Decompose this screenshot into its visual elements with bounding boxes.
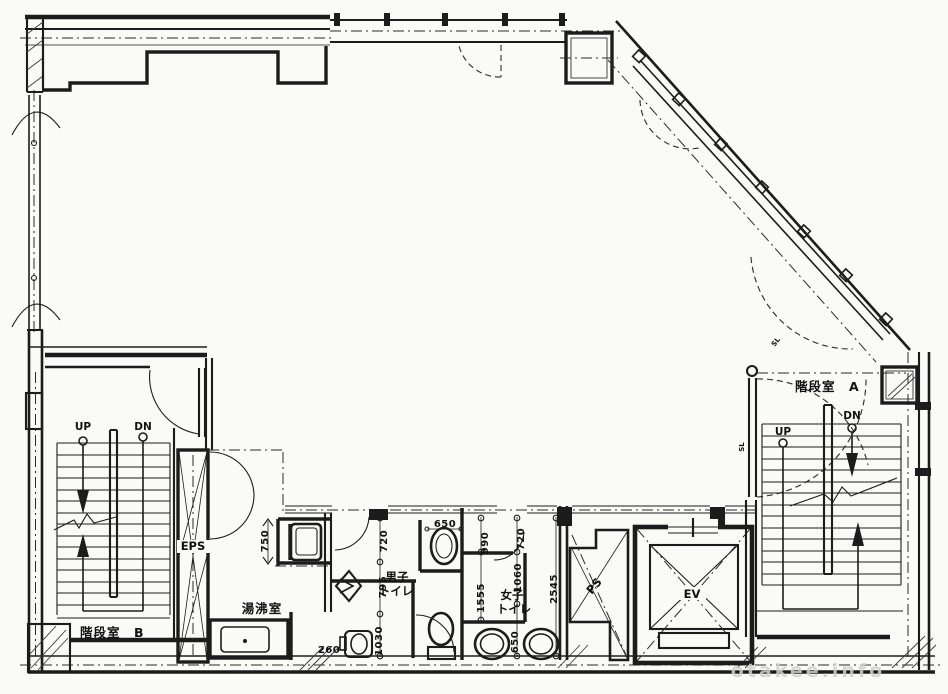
arrow-up-icon [852, 522, 864, 546]
dim-720-mens: 720 [379, 530, 390, 552]
top-window-band [330, 13, 622, 77]
floor-plan-drawing: 階段室 B 階段室 A 湯沸室 男子 トイレ 女子 トイレ EPS PS EV … [0, 0, 948, 694]
stair-walkline-b [54, 433, 147, 611]
eps-shaft [177, 358, 283, 662]
stairwell-a [746, 366, 917, 637]
floor-urinal-icon [340, 631, 372, 657]
dim-720-womens: 720 [516, 528, 527, 550]
stair-stringer-a [824, 405, 832, 574]
room-label-womens-2: トイレ [497, 602, 532, 616]
door-mens [335, 517, 369, 550]
dim-650-womens: 650 [510, 631, 521, 653]
top-wall [20, 17, 332, 92]
arrow-down-icon [77, 490, 89, 514]
stair-mark-a-dn: DN [843, 410, 861, 422]
arrow-down-icon [846, 453, 858, 477]
right-wall [908, 352, 931, 670]
dim-990: 990 [480, 532, 491, 554]
counterweight [659, 633, 729, 648]
stair-mark-b-dn: DN [134, 421, 152, 433]
toilet-icon [428, 613, 455, 659]
toilet-icon [524, 629, 558, 659]
note-sl-1: SL [770, 335, 782, 348]
dim-1060: 1060 [513, 563, 524, 593]
room-label-stairwell-b: 階段室 B [80, 625, 145, 640]
room-label-mens-1: 男子 [386, 570, 409, 584]
counter-sink-icon [210, 620, 288, 658]
basin-icon [431, 528, 457, 564]
left-wall [12, 90, 60, 672]
floor-plan-page: 階段室 B 階段室 A 湯沸室 男子 トイレ 女子 トイレ EPS PS EV … [0, 0, 948, 694]
dim-795: 795 [378, 576, 389, 598]
door-stairwell-b [150, 368, 205, 437]
stair-mark-b-up: UP [75, 421, 92, 433]
toilet-icon [475, 629, 509, 659]
kitchen-sink-icon [290, 524, 321, 560]
dim-1555: 1555 [476, 583, 487, 613]
dim-750: 750 [260, 530, 271, 552]
labels: 階段室 B 階段室 A 湯沸室 男子 トイレ 女子 トイレ EPS PS EV … [75, 335, 861, 640]
dim-1030: 1030 [374, 626, 385, 656]
note-sl-2: SL [738, 442, 746, 452]
room-label-stairwell-a: 階段室 A [795, 379, 860, 394]
shaft-label-eps: EPS [181, 539, 206, 553]
diagonal-window-wall [608, 21, 910, 362]
dim-2545: 2545 [549, 574, 560, 604]
urinal-icon [336, 571, 361, 601]
stair-treads-b [57, 443, 170, 605]
corner-column [560, 33, 618, 83]
shaft-label-ev: EV [684, 587, 701, 601]
stair-mark-a-up: UP [775, 426, 792, 438]
dim-650-mens: 650 [434, 519, 456, 530]
glazed-window-box [882, 367, 917, 403]
door-eps-corridor [208, 450, 283, 539]
dim-260: 260 [318, 645, 340, 656]
stairwell-b [28, 347, 210, 640]
wall-pillar [369, 509, 388, 520]
window-mullion-icon [633, 50, 893, 326]
ps-shaft [570, 530, 628, 660]
arrow-up-icon [77, 534, 89, 557]
watermark: otakee.info [731, 660, 885, 682]
room-label-kitchenette: 湯沸室 [242, 601, 283, 616]
